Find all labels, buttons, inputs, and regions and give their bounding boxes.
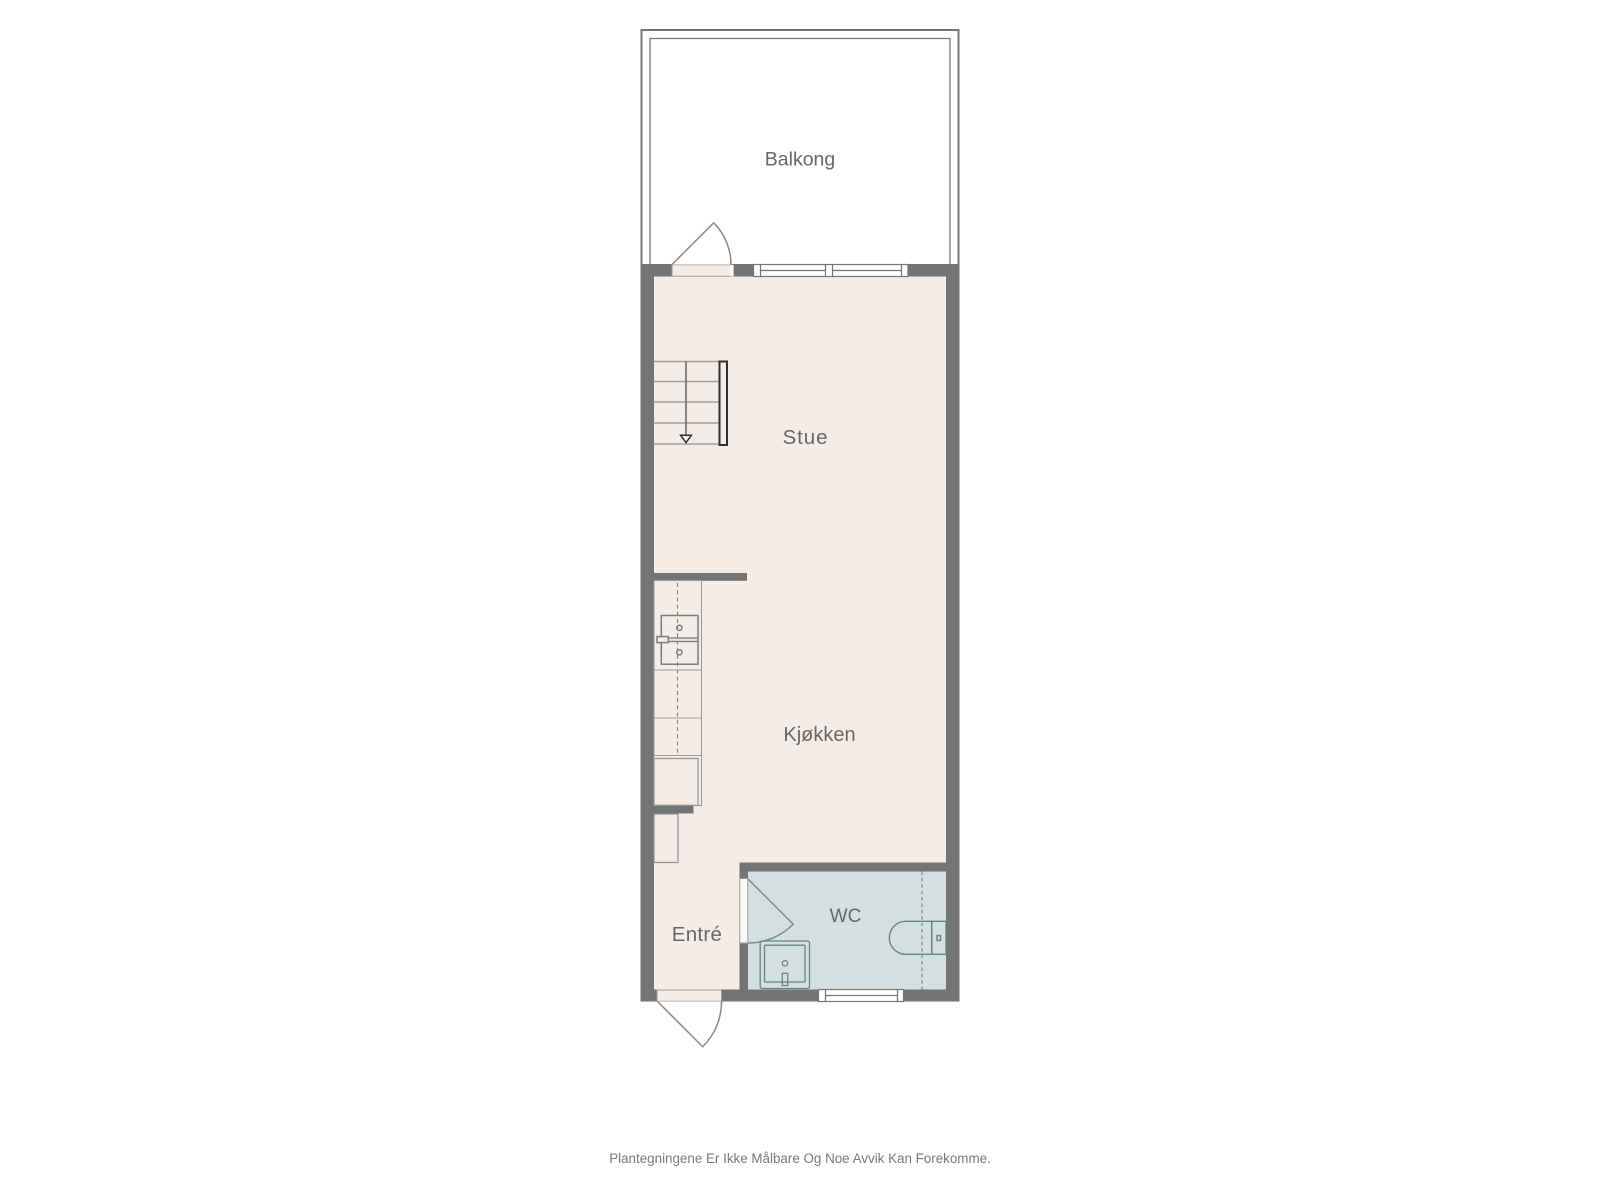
svg-text:Plantegningene Er Ikke Målbare: Plantegningene Er Ikke Målbare Og Noe Av… (609, 1151, 991, 1166)
svg-text:Balkong: Balkong (765, 149, 835, 171)
svg-text:WC: WC (830, 906, 862, 927)
svg-text:Entré: Entré (672, 923, 723, 946)
svg-text:Stue: Stue (783, 426, 829, 449)
svg-text:Kjøkken: Kjøkken (783, 724, 855, 746)
